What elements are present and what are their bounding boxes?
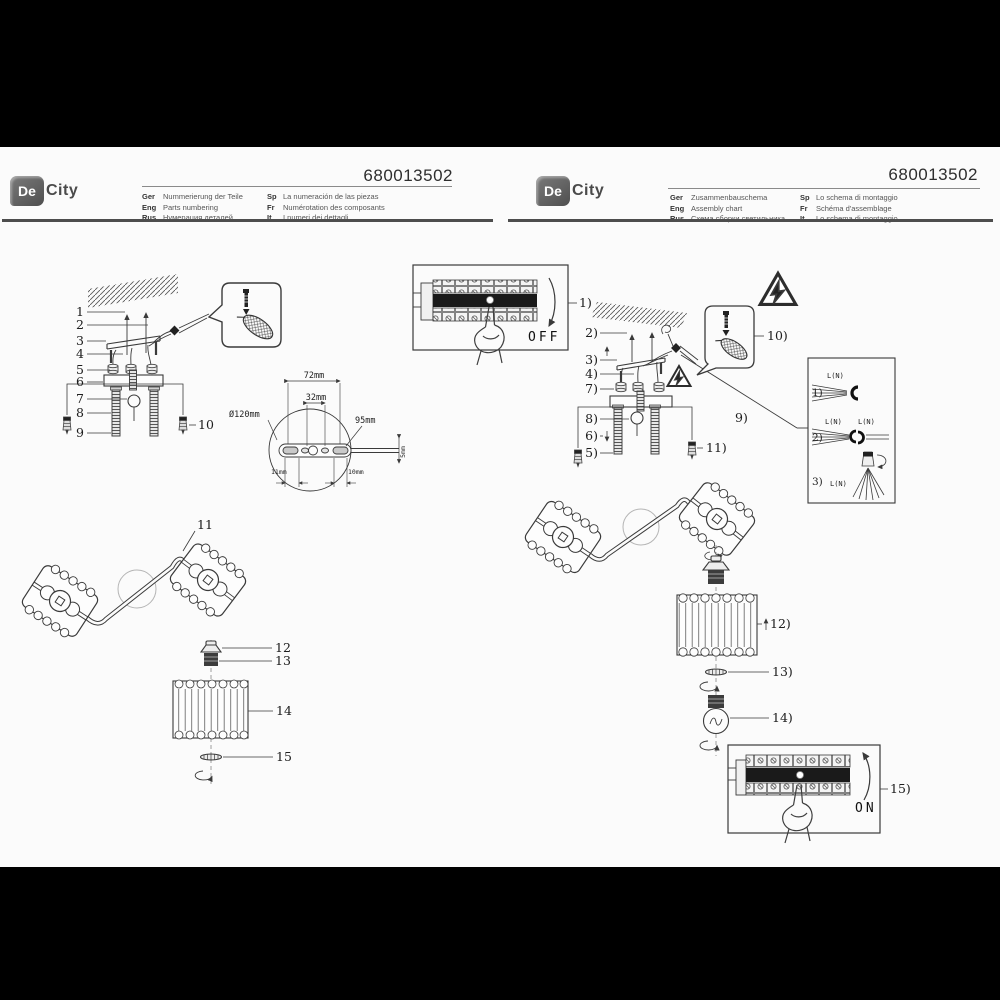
dim-label: 72mm: [304, 371, 324, 381]
step-label: 3): [585, 352, 598, 367]
left-mounting-bracket: [107, 336, 160, 363]
left-dimension-drawing: [268, 381, 399, 491]
left-dimension-labels: 72mm 32mm Ø120mm 95mm 11mm 10mm 5mm: [229, 371, 407, 476]
left-ceiling-hatch: [88, 274, 178, 308]
rotate-arrow-icon: [700, 682, 717, 691]
ribbed-shade: [677, 594, 757, 656]
step-label: 11): [706, 440, 727, 455]
step-label: 12): [770, 616, 791, 631]
part-label: 10: [198, 417, 214, 432]
wire-curl-icon: [662, 325, 671, 334]
electric-warning-icon: [668, 366, 691, 386]
part-label: 2: [76, 317, 84, 332]
screw-ring-part: [201, 754, 222, 760]
left-parts-column: [173, 640, 273, 786]
step-label: 7): [585, 381, 598, 396]
rotate-arrow-icon: [700, 741, 717, 750]
step-label: 6): [585, 428, 598, 443]
step-label: 14): [772, 710, 793, 725]
left-anchor-callout: [209, 283, 281, 347]
part-label: 15: [276, 749, 292, 764]
step-label: 1): [579, 295, 592, 310]
socket-part: [204, 653, 218, 666]
crystal-shade: [18, 560, 102, 642]
left-arm-assembly: [18, 531, 251, 642]
wall-anchor-icon: [235, 307, 277, 343]
dim-label: 32mm: [306, 393, 326, 403]
off-label: OFF: [528, 330, 560, 345]
dim-label: 5mm: [399, 446, 407, 458]
light-bulb-part: [704, 695, 729, 734]
electric-warning-icon: [760, 273, 796, 304]
wire-label: L(N): [858, 418, 875, 426]
step-label: 8): [585, 411, 598, 426]
right-anchor-callout: [697, 306, 764, 375]
wiring-step-number: 2): [812, 432, 823, 444]
screw-icon: [243, 289, 250, 315]
crystal-shade: [165, 538, 250, 622]
part-label: 6: [76, 374, 84, 389]
wire-label: L(N): [830, 480, 847, 488]
dim-label: 95mm: [355, 416, 375, 426]
dim-label: 10mm: [348, 468, 364, 476]
instruction-sheet: De City 680013502 GerNummerierung der Te…: [0, 0, 1000, 1000]
step-label: 15): [890, 781, 911, 796]
part-label: 14: [276, 703, 292, 718]
socket-part: [703, 556, 729, 584]
power-off-panel: [413, 265, 577, 365]
rotate-arrow-icon: [195, 771, 212, 780]
part-label: 9: [76, 425, 84, 440]
part-label: 11: [197, 517, 213, 532]
left-rods: [111, 387, 160, 436]
right-nuts: [616, 382, 664, 391]
step-label: 2): [585, 325, 598, 340]
on-label: ON: [855, 801, 877, 816]
finial-part: [201, 641, 221, 652]
step-label: 13): [772, 664, 793, 679]
wiring-step-number: 3): [812, 476, 823, 488]
step-label: 4): [585, 366, 598, 381]
left-mounting-arrows: [127, 313, 146, 355]
right-ceiling-hatch: [591, 302, 687, 328]
wire-label: L(N): [825, 418, 842, 426]
wire-label: L(N): [827, 372, 844, 380]
crystal-shade: [521, 496, 606, 579]
part-label: 13: [275, 653, 291, 668]
screw-ring-part: [706, 669, 727, 675]
power-on-panel: [728, 745, 888, 843]
part-label: 4: [76, 346, 84, 361]
step-label: 5): [585, 445, 598, 460]
part-label: 8: [76, 405, 84, 420]
ribbed-shade: [173, 680, 248, 739]
diagram-canvas: 1 2 3 4 5 6 7 8 9 10 11 12 13 14 15 72mm…: [0, 0, 1000, 1000]
wiring-step-number: 1): [812, 387, 823, 399]
step-label: 10): [767, 328, 788, 343]
part-label: 7: [76, 391, 84, 406]
step-label: 9): [735, 410, 748, 425]
crystal-shade: [674, 477, 759, 561]
dim-label: Ø120mm: [229, 409, 260, 420]
right-parts-column: [677, 545, 769, 756]
dim-label: 11mm: [271, 468, 287, 476]
right-mounting-arrows: [632, 333, 652, 362]
